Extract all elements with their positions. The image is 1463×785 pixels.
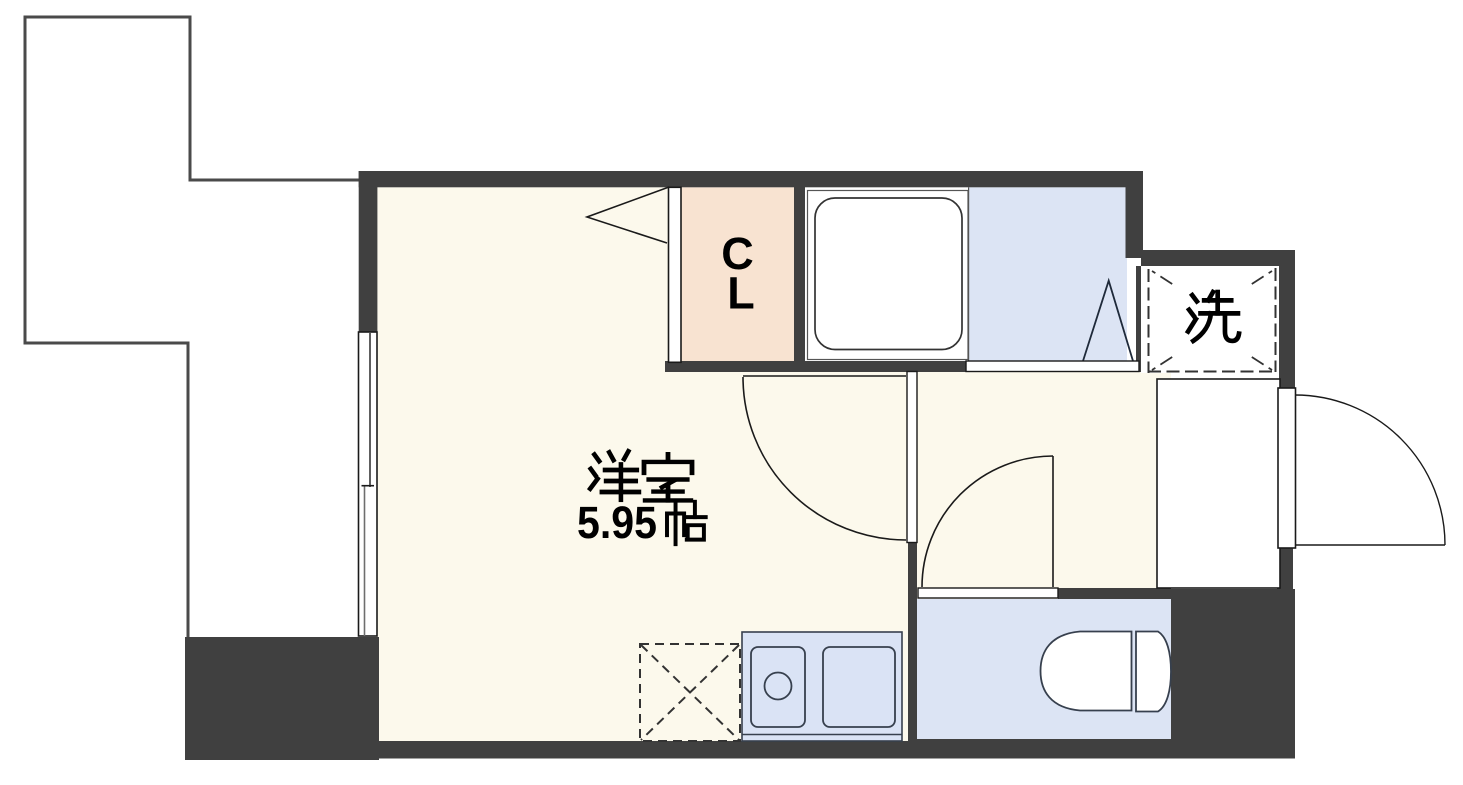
svg-text:5.95: 5.95 — [577, 497, 657, 548]
svg-text:L: L — [727, 268, 755, 319]
